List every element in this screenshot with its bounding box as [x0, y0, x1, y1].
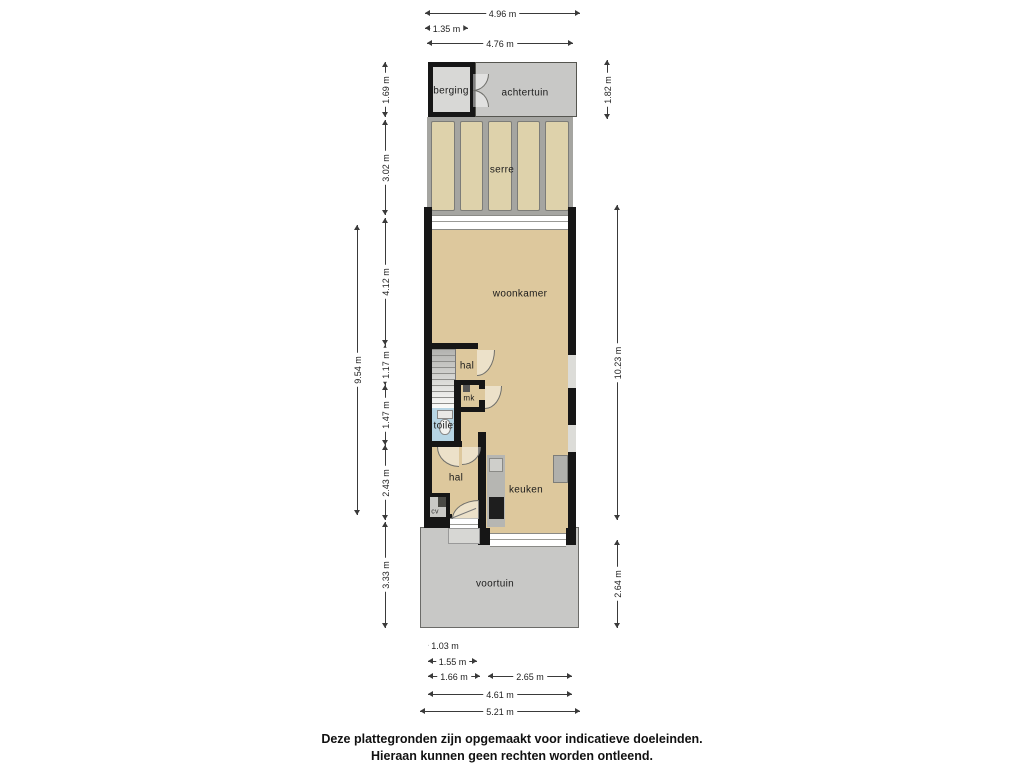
cv-boiler	[438, 497, 446, 507]
window-right-keuken	[568, 425, 576, 452]
floorplan-canvas: 4.96 m 1.35 m 4.76 m 1.69 m 3.02 m 4.12 …	[0, 0, 1024, 768]
disclaimer: Deze plattegronden zijn opgemaakt voor i…	[0, 731, 1024, 765]
room-label-serre: serre	[490, 165, 514, 176]
dim-label: 1.55 m	[436, 657, 470, 667]
dim-right-264: 2.64 m	[612, 540, 623, 628]
sliding-door	[432, 215, 568, 230]
dim-bottom-521: 5.21 m	[420, 706, 580, 717]
dim-bottom-166: 1.66 m	[428, 671, 480, 682]
room-label-voortuin: voortuin	[476, 579, 514, 590]
room-label-cv: cv	[431, 509, 439, 516]
dim-label: 9.54 m	[353, 353, 363, 387]
wall-left-main	[424, 207, 432, 528]
dim-label: 4.61 m	[483, 690, 517, 700]
dim-right-1023: 10.23 m	[612, 205, 623, 520]
dim-left-147: 1.47 m	[380, 385, 391, 445]
dim-label: 3.02 m	[381, 151, 391, 185]
room-label-mk: mk	[463, 394, 474, 403]
serre-pane	[545, 121, 569, 211]
dim-bottom-155: 1.55 m	[428, 656, 477, 667]
dim-label: 1.47 m	[381, 398, 391, 432]
room-label-hal-lower: hal	[449, 473, 463, 484]
dim-label: 4.12 m	[381, 265, 391, 299]
dim-label: 4.76 m	[483, 39, 517, 49]
dim-left-169: 1.69 m	[380, 62, 391, 117]
dim-label: 10.23 m	[613, 343, 623, 382]
dim-label: 2.43 m	[381, 466, 391, 500]
dim-left-302: 3.02 m	[380, 120, 391, 215]
dim-label: 5.21 m	[483, 707, 517, 717]
kitchen-fridge	[553, 455, 568, 483]
dim-bottom-265: 2.65 m	[488, 671, 572, 682]
room-label-keuken: keuken	[509, 485, 543, 496]
dim-left-333: 3.33 m	[380, 522, 391, 628]
staircase	[430, 349, 456, 408]
room-label-berging: berging	[433, 86, 468, 97]
wall-hal-top	[430, 343, 478, 349]
dim-label: 1.82 m	[603, 73, 613, 107]
dim-label: 1.03 m	[428, 641, 462, 651]
kitchen-stove	[489, 497, 504, 519]
room-label-woonkamer: woonkamer	[493, 289, 547, 300]
meter-box	[463, 384, 470, 392]
dim-bottom-461: 4.61 m	[428, 689, 572, 700]
dim-label: 2.64 m	[613, 567, 623, 601]
dim-label: 1.69 m	[381, 73, 391, 107]
dim-label: 1.35 m	[430, 24, 464, 34]
keuken-front-window	[490, 533, 566, 547]
disclaimer-line1: Deze plattegronden zijn opgemaakt voor i…	[0, 731, 1024, 748]
dim-top-476: 4.76 m	[427, 38, 573, 49]
dim-left-412: 4.12 m	[380, 218, 391, 345]
dim-label: 1.66 m	[437, 672, 471, 682]
dim-label: 4.96 m	[486, 9, 520, 19]
serre-pane	[431, 121, 455, 211]
dim-label: 2.65 m	[513, 672, 547, 682]
room-label-achtertuin: achtertuin	[502, 88, 549, 99]
dim-left-117: 1.17 m	[380, 345, 391, 385]
room-label-toilet: toilet	[434, 421, 457, 432]
kitchen-sink	[489, 458, 503, 472]
dim-left-954: 9.54 m	[352, 225, 363, 515]
room-label-hal-upper: hal	[460, 361, 474, 372]
front-doorstep	[448, 528, 480, 544]
wall-front-keuken-right	[566, 528, 576, 545]
serre-pane	[517, 121, 541, 211]
dim-label: 3.33 m	[381, 558, 391, 592]
serre-pane	[460, 121, 484, 211]
dim-label: 1.17 m	[381, 348, 391, 382]
dim-top-496: 4.96 m	[425, 8, 580, 19]
toilet-tank	[437, 410, 453, 419]
dim-right-182: 1.82 m	[602, 60, 613, 119]
dim-top-135: 1.35 m	[425, 23, 468, 34]
dim-bottom-103: 1.03 m	[428, 640, 462, 651]
dim-left-243: 2.43 m	[380, 445, 391, 520]
window-right-hal	[568, 355, 576, 388]
disclaimer-line2: Hieraan kunnen geen rechten worden ontle…	[0, 748, 1024, 765]
